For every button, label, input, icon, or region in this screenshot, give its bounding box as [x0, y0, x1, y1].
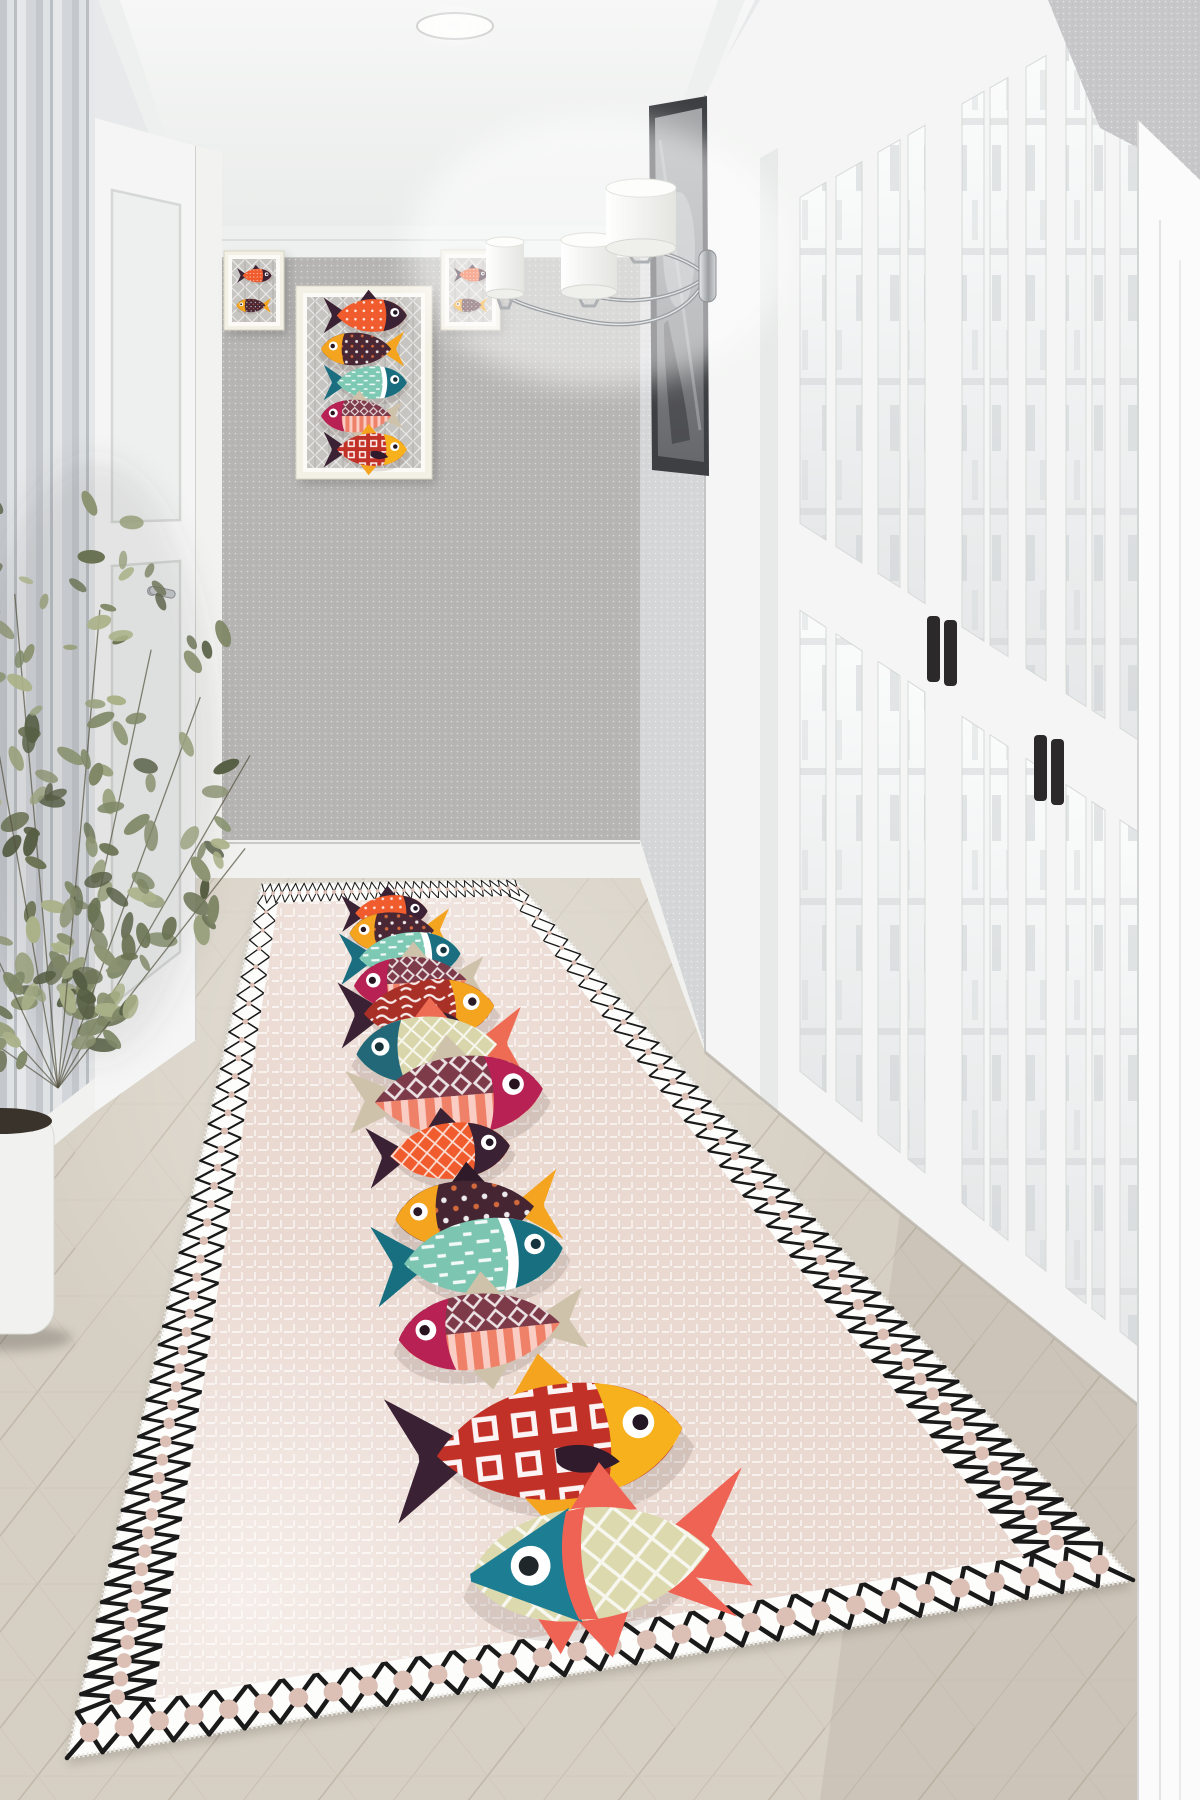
door-glass-pane: [990, 77, 1008, 656]
end-wall-baseboard: [196, 840, 640, 878]
door-glass-pane: [1066, 785, 1086, 1304]
sconce-shade: [486, 237, 524, 308]
door-glass-pane: [962, 91, 984, 641]
bright-side-panel: [1138, 120, 1200, 1800]
door-glass-pane: [908, 681, 925, 1173]
wall-art-frame-left-small: [224, 251, 288, 335]
door-glass-pane: [962, 716, 984, 1220]
door-glass-pane: [878, 140, 900, 588]
door-glass-pane: [1092, 802, 1105, 1320]
wall-art-frame-center: [296, 286, 436, 484]
door-glass-pane: [836, 162, 862, 564]
wall-sconce: [408, 117, 788, 387]
door-handle: [1034, 735, 1047, 801]
door-handle: [927, 616, 940, 682]
door-handle: [944, 620, 957, 686]
door-glass-pane: [908, 125, 925, 603]
sconce-shade: [606, 179, 676, 262]
door-glass-pane: [800, 610, 826, 1092]
door-glass-pane: [1066, 33, 1086, 707]
hallway-photo: Photoreal hallway interior: beige runner…: [0, 0, 1200, 1800]
door-glass-pane: [1026, 56, 1046, 681]
sconce-mount-plate: [699, 250, 716, 302]
door-glass-pane: [800, 182, 826, 540]
door-handle: [1051, 739, 1064, 805]
door-glass-pane: [990, 735, 1008, 1241]
hallway-scene: [0, 0, 1200, 1800]
recessed-light: [417, 13, 493, 39]
door-glass-pane: [836, 634, 862, 1122]
plant-pot: [0, 1108, 54, 1334]
door-glass-pane: [878, 661, 900, 1152]
door-glass-pane: [1026, 758, 1046, 1271]
